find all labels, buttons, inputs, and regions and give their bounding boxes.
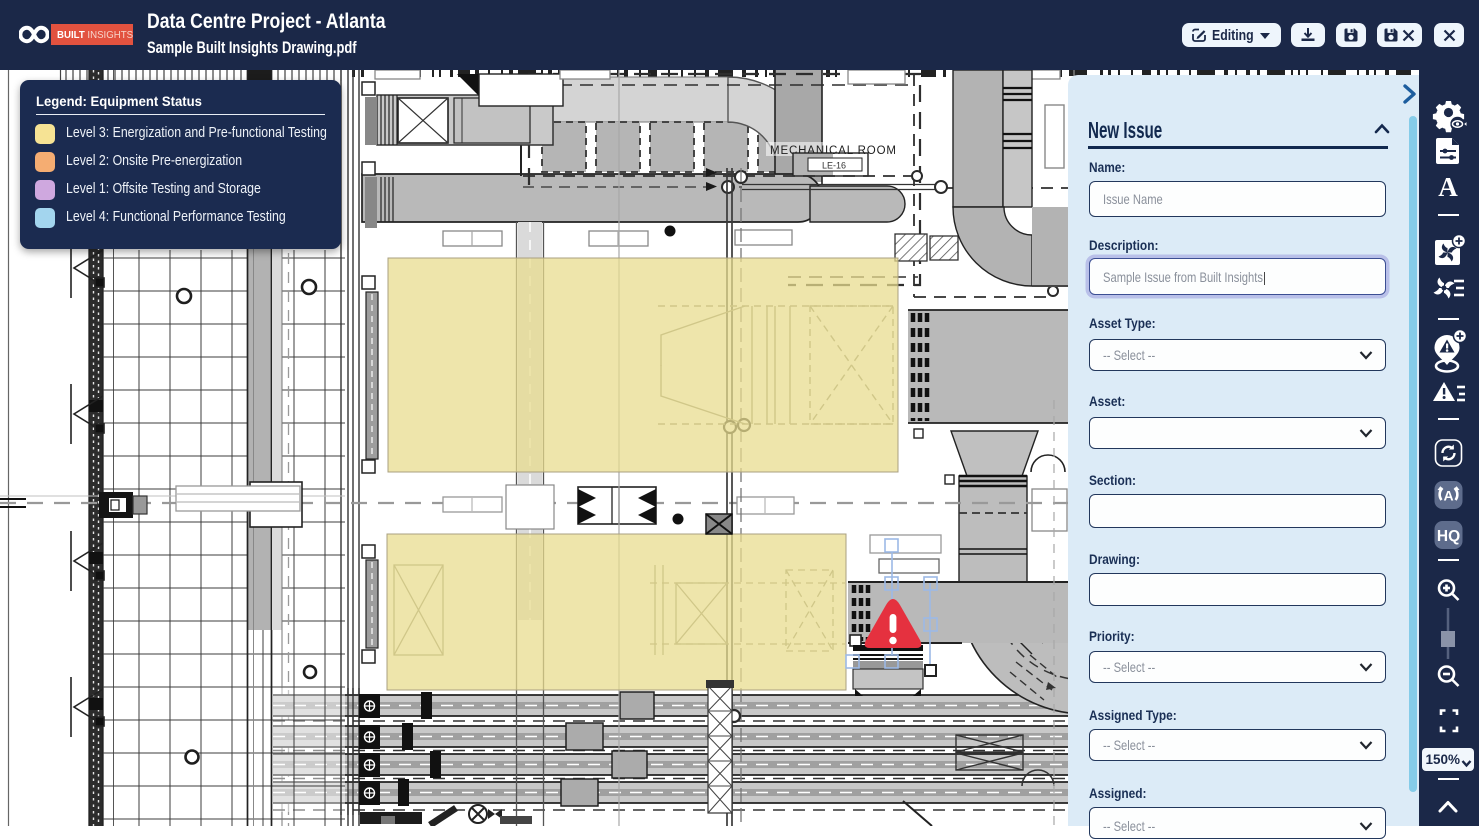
svg-text:LE-16: LE-16	[822, 161, 846, 171]
svg-text:A: A	[1443, 488, 1453, 504]
svg-text:A: A	[1438, 172, 1458, 202]
svg-text:HQ: HQ	[1437, 528, 1460, 545]
svg-text:150%: 150%	[1426, 752, 1461, 767]
